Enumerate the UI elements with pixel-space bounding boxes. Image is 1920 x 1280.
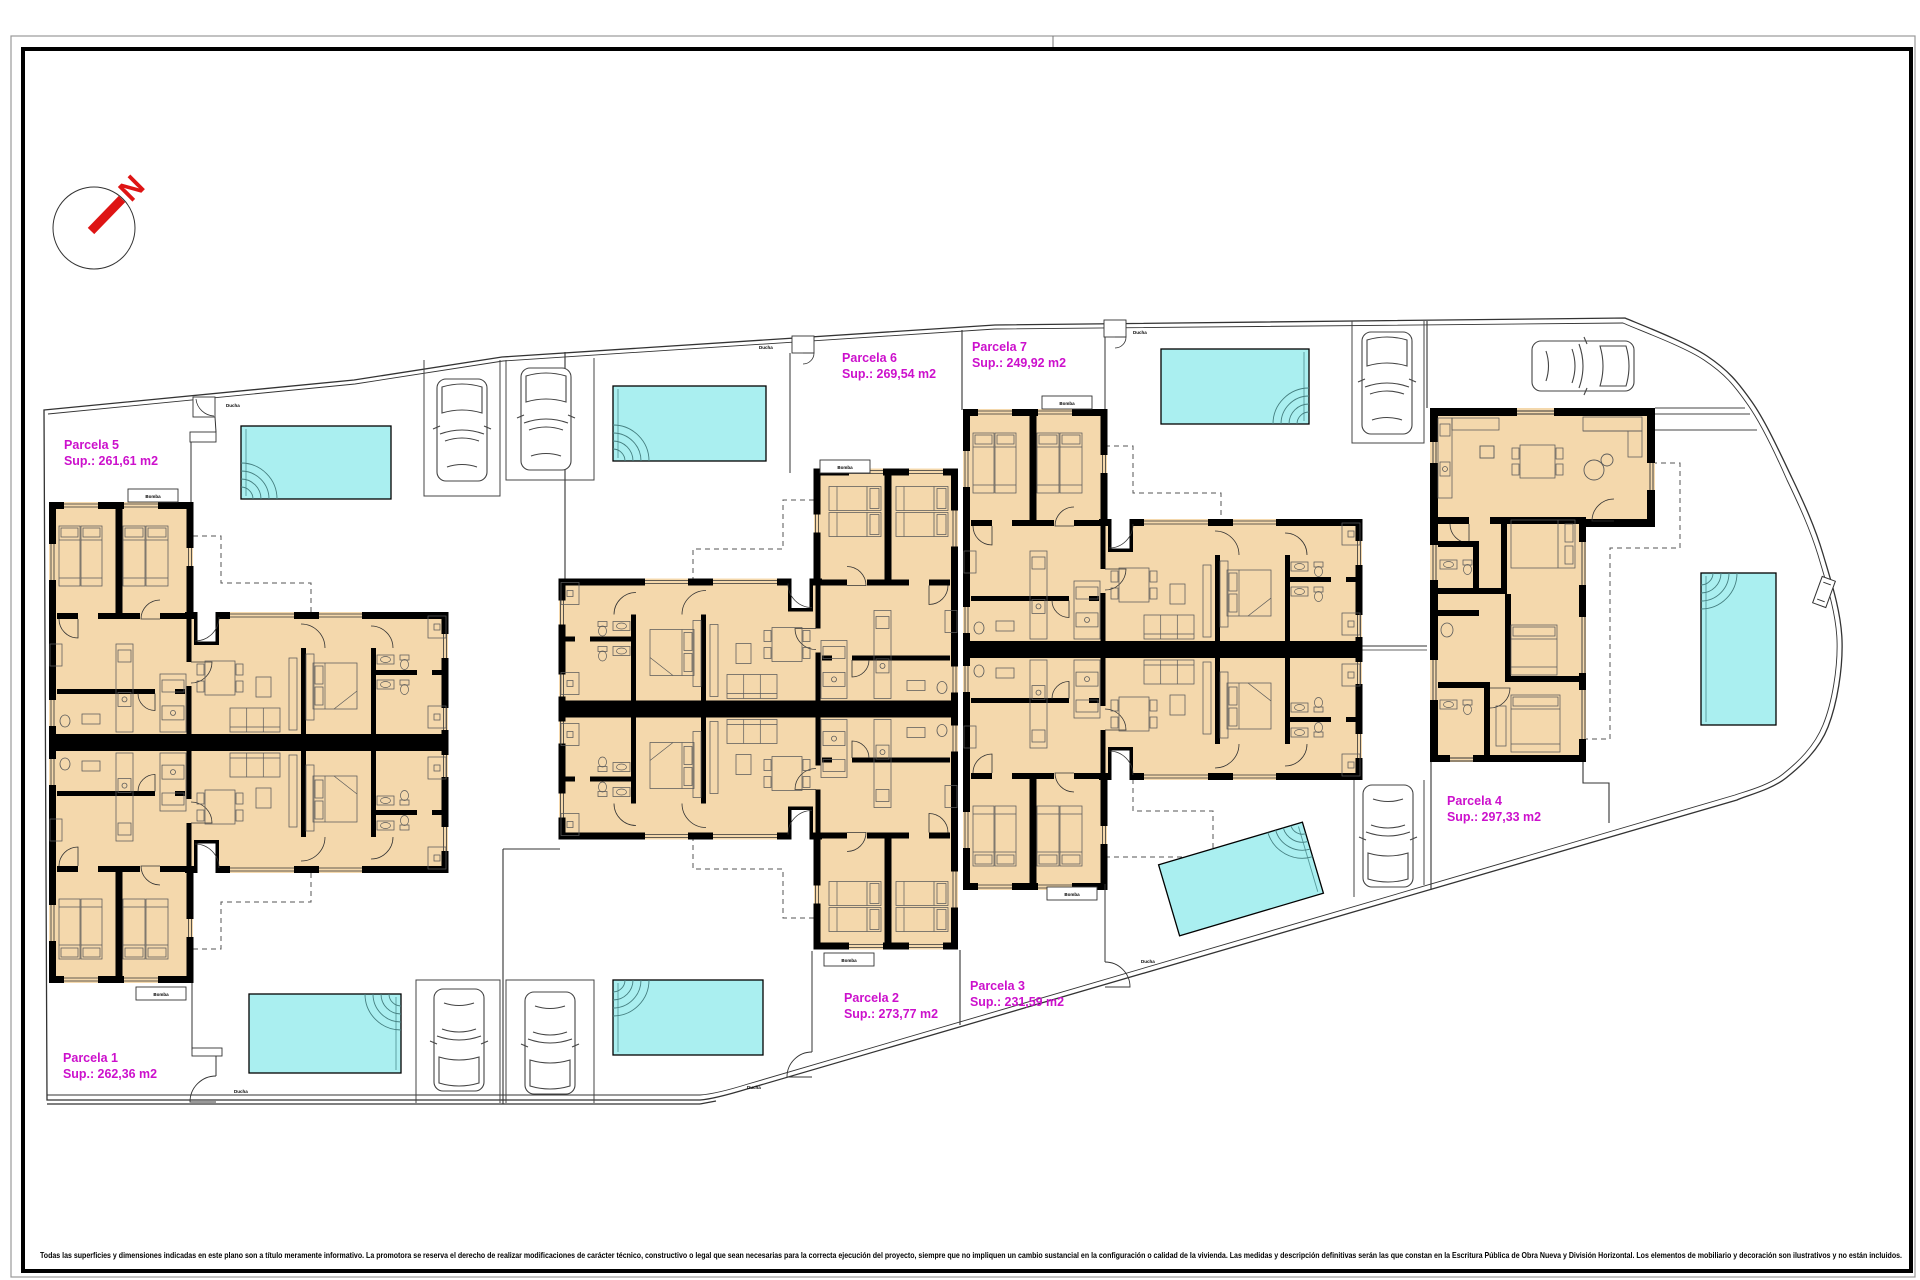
svg-text:Parcela 3: Parcela 3 [970,978,1025,993]
svg-text:Ducha: Ducha [1133,330,1147,335]
svg-text:Bomba: Bomba [841,958,857,963]
svg-text:Ducha: Ducha [226,403,240,408]
svg-text:Ducha: Ducha [1141,959,1155,964]
svg-text:Sup.: 269,54 m2: Sup.: 269,54 m2 [842,366,936,381]
svg-text:Ducha: Ducha [234,1089,248,1094]
svg-text:Sup.: 231,59 m2: Sup.: 231,59 m2 [970,994,1064,1009]
svg-text:Parcela 7: Parcela 7 [972,339,1027,354]
svg-text:Ducha: Ducha [759,345,773,350]
svg-text:Bomba: Bomba [837,465,853,470]
svg-text:Ducha: Ducha [747,1085,761,1090]
svg-text:Sup.: 261,61 m2: Sup.: 261,61 m2 [64,453,158,468]
svg-text:Bomba: Bomba [145,494,161,499]
svg-text:Parcela 6: Parcela 6 [842,350,897,365]
svg-text:Sup.: 249,92 m2: Sup.: 249,92 m2 [972,355,1066,370]
svg-text:Sup.: 273,77 m2: Sup.: 273,77 m2 [844,1006,938,1021]
svg-text:Sup.: 262,36 m2: Sup.: 262,36 m2 [63,1066,157,1081]
svg-text:Bomba: Bomba [1059,401,1075,406]
svg-text:Parcela 4: Parcela 4 [1447,793,1503,808]
svg-text:Bomba: Bomba [153,992,169,997]
svg-text:Sup.: 297,33 m2: Sup.: 297,33 m2 [1447,809,1541,824]
svg-text:Parcela 5: Parcela 5 [64,437,119,452]
svg-text:Bomba: Bomba [1064,892,1080,897]
svg-text:Todas las superficies y dimens: Todas las superficies y dimensiones indi… [40,1250,1902,1260]
svg-text:Parcela 1: Parcela 1 [63,1050,118,1065]
svg-text:Parcela 2: Parcela 2 [844,990,899,1005]
